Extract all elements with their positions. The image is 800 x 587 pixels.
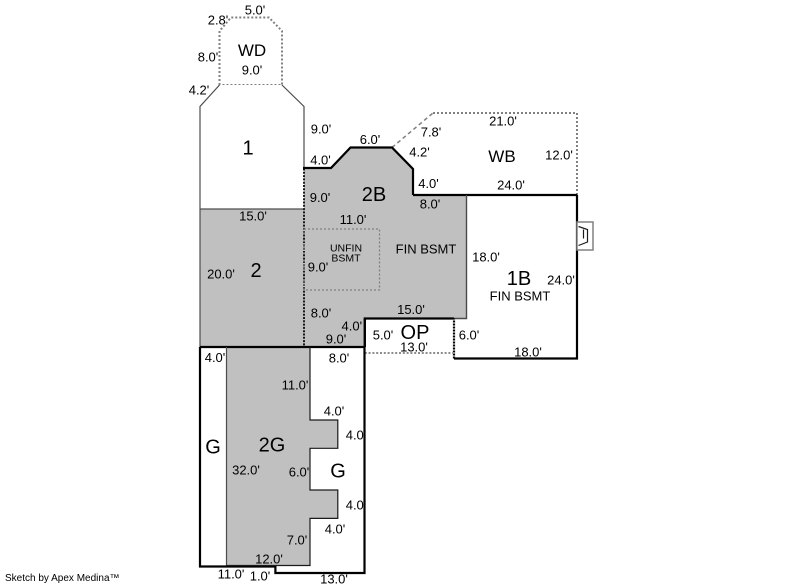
svg-text:6.0': 6.0' <box>289 465 310 480</box>
svg-text:9.0': 9.0' <box>311 122 332 137</box>
svg-text:18.0': 18.0' <box>472 250 500 265</box>
svg-text:5.0': 5.0' <box>245 3 266 18</box>
svg-text:Sketch by Apex Medina™: Sketch by Apex Medina™ <box>5 573 120 584</box>
svg-text:BSMT: BSMT <box>331 253 361 265</box>
svg-text:6.0': 6.0' <box>459 328 480 343</box>
svg-text:11.0': 11.0' <box>218 567 245 582</box>
svg-text:G: G <box>330 461 346 483</box>
svg-text:4.0': 4.0' <box>346 428 367 443</box>
svg-text:4.0': 4.0' <box>418 176 439 191</box>
svg-text:21.0': 21.0' <box>489 114 517 129</box>
svg-text:4.0': 4.0' <box>205 350 226 365</box>
svg-text:4.0': 4.0' <box>325 522 346 537</box>
svg-text:1: 1 <box>242 138 253 160</box>
svg-text:4.0': 4.0' <box>346 498 367 513</box>
svg-text:18.0': 18.0' <box>514 345 542 360</box>
svg-text:13.0': 13.0' <box>400 340 428 355</box>
svg-text:13.0': 13.0' <box>320 572 348 587</box>
svg-text:2G: 2G <box>259 435 286 457</box>
svg-text:2.8': 2.8' <box>208 13 229 28</box>
svg-text:7.0': 7.0' <box>287 533 308 548</box>
svg-text:20.0': 20.0' <box>207 267 235 282</box>
svg-text:4.2': 4.2' <box>409 145 430 160</box>
svg-text:7.8': 7.8' <box>421 125 442 140</box>
svg-text:15.0': 15.0' <box>239 209 267 224</box>
svg-text:9.0': 9.0' <box>326 332 347 347</box>
svg-text:15.0': 15.0' <box>397 302 425 317</box>
svg-text:5.0': 5.0' <box>373 328 394 343</box>
svg-text:4.0': 4.0' <box>324 404 345 419</box>
svg-text:24.0': 24.0' <box>547 273 575 288</box>
svg-text:2B: 2B <box>362 184 386 206</box>
svg-text:WB: WB <box>488 147 515 166</box>
svg-text:9.0': 9.0' <box>308 260 329 275</box>
svg-text:8.0': 8.0' <box>311 306 332 321</box>
svg-text:8.0': 8.0' <box>329 351 350 366</box>
svg-text:11.0': 11.0' <box>282 378 309 393</box>
svg-text:32.0': 32.0' <box>232 463 260 478</box>
svg-text:1B: 1B <box>507 268 531 290</box>
svg-text:24.0': 24.0' <box>497 178 525 193</box>
svg-text:6.0': 6.0' <box>360 132 381 147</box>
svg-text:4.0': 4.0' <box>310 153 331 168</box>
svg-text:8.0': 8.0' <box>198 50 219 65</box>
svg-text:1.0': 1.0' <box>250 569 271 584</box>
svg-text:9.0': 9.0' <box>242 63 263 78</box>
svg-text:4.2': 4.2' <box>189 83 210 98</box>
svg-text:8.0': 8.0' <box>420 197 441 212</box>
svg-text:FIN BSMT: FIN BSMT <box>490 289 551 304</box>
svg-text:12.0': 12.0' <box>545 148 573 163</box>
svg-text:G: G <box>205 437 221 459</box>
svg-text:11.0': 11.0' <box>340 212 367 227</box>
svg-text:9.0': 9.0' <box>310 190 331 205</box>
svg-text:12.0': 12.0' <box>255 552 283 567</box>
svg-text:WD: WD <box>238 41 266 60</box>
svg-text:2: 2 <box>250 260 261 282</box>
svg-text:FIN BSMT: FIN BSMT <box>396 242 457 257</box>
